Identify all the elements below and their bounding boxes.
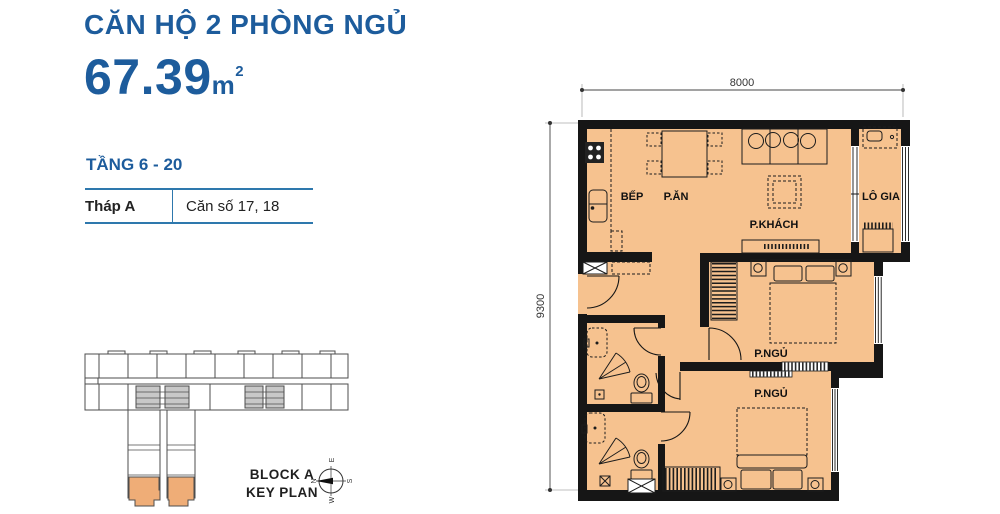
- floor-plan: 8000 9300 BẾP P.ĂN P.KHÁCH LÔ GIA P.NGỦ …: [520, 70, 920, 514]
- key-plan-caption-line2: KEY PLAN: [246, 485, 318, 500]
- room-label-bedroom2: P.NGỦ: [754, 387, 787, 400]
- room-label-kitchen: BẾP: [621, 190, 644, 203]
- technical-shaft-box: [583, 262, 607, 274]
- key-plan: BLOCK A KEY PLAN E S W N: [78, 346, 354, 512]
- info-table-tower-cell: Tháp A: [85, 190, 173, 222]
- dimension-height-label: 9300: [535, 294, 547, 318]
- area-value: 67.39m2: [84, 48, 244, 106]
- page-title: CĂN HỘ 2 PHÒNG NGỦ: [84, 9, 407, 41]
- brochure-page: CĂN HỘ 2 PHÒNG NGỦ 67.39m2 TẦNG 6 - 20 T…: [0, 0, 1000, 514]
- room-label-living: P.KHÁCH: [750, 218, 799, 231]
- area-number: 67.39: [84, 49, 212, 105]
- room-label-bedroom1: P.NGỦ: [754, 347, 787, 360]
- dimension-width-label: 8000: [730, 77, 754, 89]
- key-plan-highlighted-units: [129, 477, 194, 506]
- room-label-loggia: LÔ GIA: [862, 190, 900, 203]
- info-table: Tháp A Căn số 17, 18: [85, 188, 313, 224]
- floors-label: TẦNG 6 - 20: [86, 155, 182, 175]
- compass-n-label: N: [311, 478, 318, 483]
- area-unit: m: [212, 70, 236, 100]
- key-plan-caption-line1: BLOCK A: [250, 467, 315, 482]
- compass-e-label: E: [329, 457, 336, 462]
- compass-s-label: S: [347, 478, 354, 483]
- area-unit-sup: 2: [235, 63, 244, 80]
- info-table-units-cell: Căn số 17, 18: [173, 190, 279, 222]
- compass-w-label: W: [329, 496, 336, 503]
- shaft-box-bottom: [628, 479, 655, 493]
- room-label-dining: P.ĂN: [664, 190, 689, 203]
